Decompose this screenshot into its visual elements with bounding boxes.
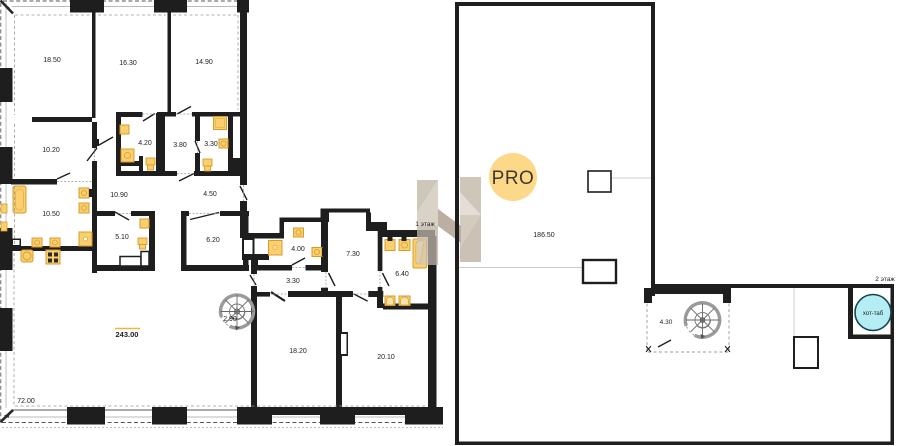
svg-text:18.20: 18.20 bbox=[289, 348, 307, 355]
svg-text:1 этаж: 1 этаж bbox=[415, 221, 435, 228]
svg-text:14.90: 14.90 bbox=[195, 59, 213, 66]
svg-text:186.50: 186.50 bbox=[533, 232, 555, 239]
svg-text:20.10: 20.10 bbox=[377, 354, 395, 361]
svg-text:18.50: 18.50 bbox=[43, 57, 61, 64]
svg-text:16.30: 16.30 bbox=[119, 60, 137, 67]
svg-text:5.10: 5.10 bbox=[115, 234, 129, 241]
svg-text:10.50: 10.50 bbox=[42, 211, 60, 218]
svg-text:4.30: 4.30 bbox=[660, 319, 673, 326]
svg-text:6.40: 6.40 bbox=[395, 271, 409, 278]
svg-text:10.90: 10.90 bbox=[110, 192, 128, 199]
svg-text:7.30: 7.30 bbox=[346, 251, 360, 258]
svg-text:4.20: 4.20 bbox=[138, 140, 152, 147]
svg-text:3.30: 3.30 bbox=[286, 278, 300, 285]
svg-text:2.90: 2.90 bbox=[223, 316, 237, 323]
svg-text:2 этаж: 2 этаж bbox=[875, 276, 895, 283]
svg-text:243.00: 243.00 bbox=[116, 330, 139, 339]
svg-text:хот-таб: хот-таб bbox=[863, 311, 884, 317]
svg-text:3.30: 3.30 bbox=[204, 141, 218, 148]
svg-text:6.20: 6.20 bbox=[206, 237, 220, 244]
svg-text:4.00: 4.00 bbox=[291, 246, 305, 253]
svg-text:3.80: 3.80 bbox=[173, 142, 187, 149]
svg-text:4.50: 4.50 bbox=[203, 191, 217, 198]
svg-text:72.00: 72.00 bbox=[17, 398, 35, 405]
svg-text:10.20: 10.20 bbox=[42, 147, 60, 154]
svg-text:PRO: PRO bbox=[492, 168, 535, 189]
